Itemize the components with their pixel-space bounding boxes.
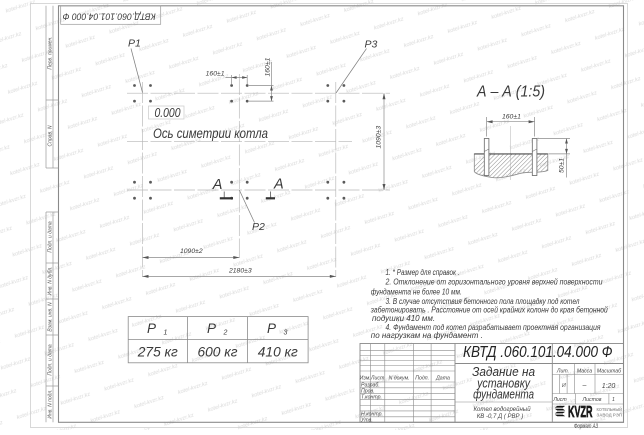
- svg-text:Масса: Масса: [577, 369, 592, 375]
- svg-text:Утв.: Утв.: [361, 417, 373, 423]
- svg-text:А: А: [273, 176, 284, 192]
- svg-text:Подп. и дата: Подп. и дата: [48, 344, 54, 376]
- svg-text:Изм.: Изм.: [360, 376, 371, 382]
- svg-text:1090±3: 1090±3: [376, 126, 383, 149]
- svg-text:P: P: [267, 321, 276, 336]
- svg-text:Котел водогрейный: Котел водогрейный: [473, 406, 531, 413]
- svg-text:Формат А3: Формат А3: [574, 423, 598, 430]
- svg-text:Лит.: Лит.: [556, 369, 569, 375]
- svg-text:3: 3: [284, 330, 288, 337]
- svg-text:2. Отклонение от горизонтальн: 2. Отклонение от горизонтального уровня …: [385, 278, 603, 287]
- svg-text:N докум.: N докум.: [389, 376, 410, 382]
- svg-text:P3: P3: [365, 39, 378, 51]
- svg-text:по нагрузкам на фундамент .: по нагрузкам на фундамент .: [371, 331, 483, 340]
- svg-text:1: 1: [164, 330, 168, 337]
- svg-text:Листов: Листов: [582, 397, 602, 403]
- svg-text:160±1: 160±1: [502, 114, 521, 121]
- svg-text:P: P: [147, 321, 156, 336]
- svg-text:Справ. N: Справ. N: [48, 125, 54, 146]
- svg-text:Взам. инв. N: Взам. инв. N: [48, 302, 54, 332]
- svg-text:50±1: 50±1: [559, 158, 566, 173]
- svg-text:160±1: 160±1: [265, 57, 272, 76]
- svg-text:КВТД .060.101.04.000 Ф: КВТД .060.101.04.000 Ф: [463, 344, 613, 361]
- svg-text:Инв. N подл.: Инв. N подл.: [48, 389, 54, 418]
- svg-text:410 кг: 410 кг: [258, 344, 298, 359]
- svg-text:подушки 410 мм.: подушки 410 мм.: [372, 314, 435, 323]
- svg-text:КВТД.060.101.04.000 Ф: КВТД.060.101.04.000 Ф: [63, 12, 156, 22]
- svg-text:Масштаб: Масштаб: [597, 369, 622, 375]
- svg-text:И: И: [562, 383, 566, 389]
- svg-text:фундамента не более 10 мм.: фундамента не более 10 мм.: [371, 287, 462, 296]
- svg-text:1090±2: 1090±2: [180, 248, 203, 255]
- svg-text:160±1: 160±1: [206, 71, 225, 78]
- svg-text:Дата: Дата: [435, 376, 450, 382]
- svg-text:1. * Размер для справок .: 1. * Размер для справок .: [386, 268, 460, 277]
- svg-text:фундамента: фундамента: [473, 388, 534, 402]
- svg-text:КВ -0,7 Д ( РВР ): КВ -0,7 Д ( РВР ): [477, 414, 523, 420]
- svg-text:Подп. и дата: Подп. и дата: [48, 221, 54, 253]
- svg-text:Перв. примен.: Перв. примен.: [48, 36, 54, 69]
- svg-text:1:20: 1:20: [602, 383, 616, 390]
- svg-text:275 кг: 275 кг: [137, 344, 178, 359]
- svg-text:ЗАВОД РЭП: ЗАВОД РЭП: [597, 413, 623, 418]
- svg-text:Инв. N дубл.: Инв. N дубл.: [48, 267, 54, 296]
- svg-text:А – А (1:5): А – А (1:5): [476, 84, 545, 101]
- svg-text:Ось симетрии котла: Ось симетрии котла: [153, 125, 268, 141]
- svg-text:Лист: Лист: [370, 376, 385, 382]
- svg-text:600 кг: 600 кг: [198, 344, 238, 359]
- svg-text:P1: P1: [128, 38, 141, 50]
- svg-text:KVZR: KVZR: [568, 404, 593, 421]
- svg-text:КОТЕЛЬНЫЙ: КОТЕЛЬНЫЙ: [597, 405, 623, 412]
- svg-text:2: 2: [223, 330, 228, 337]
- svg-text:Подп.: Подп.: [415, 376, 429, 382]
- svg-text:0.000: 0.000: [155, 105, 182, 120]
- svg-text:–: –: [582, 382, 587, 389]
- svg-text:P2: P2: [252, 221, 265, 233]
- svg-text:P: P: [207, 321, 216, 336]
- svg-text:Лист: Лист: [552, 397, 567, 403]
- svg-text:2180±3: 2180±3: [228, 268, 252, 275]
- svg-text:А: А: [212, 177, 223, 193]
- svg-text:Т.контр.: Т.контр.: [361, 395, 382, 401]
- svg-text:1: 1: [612, 397, 615, 403]
